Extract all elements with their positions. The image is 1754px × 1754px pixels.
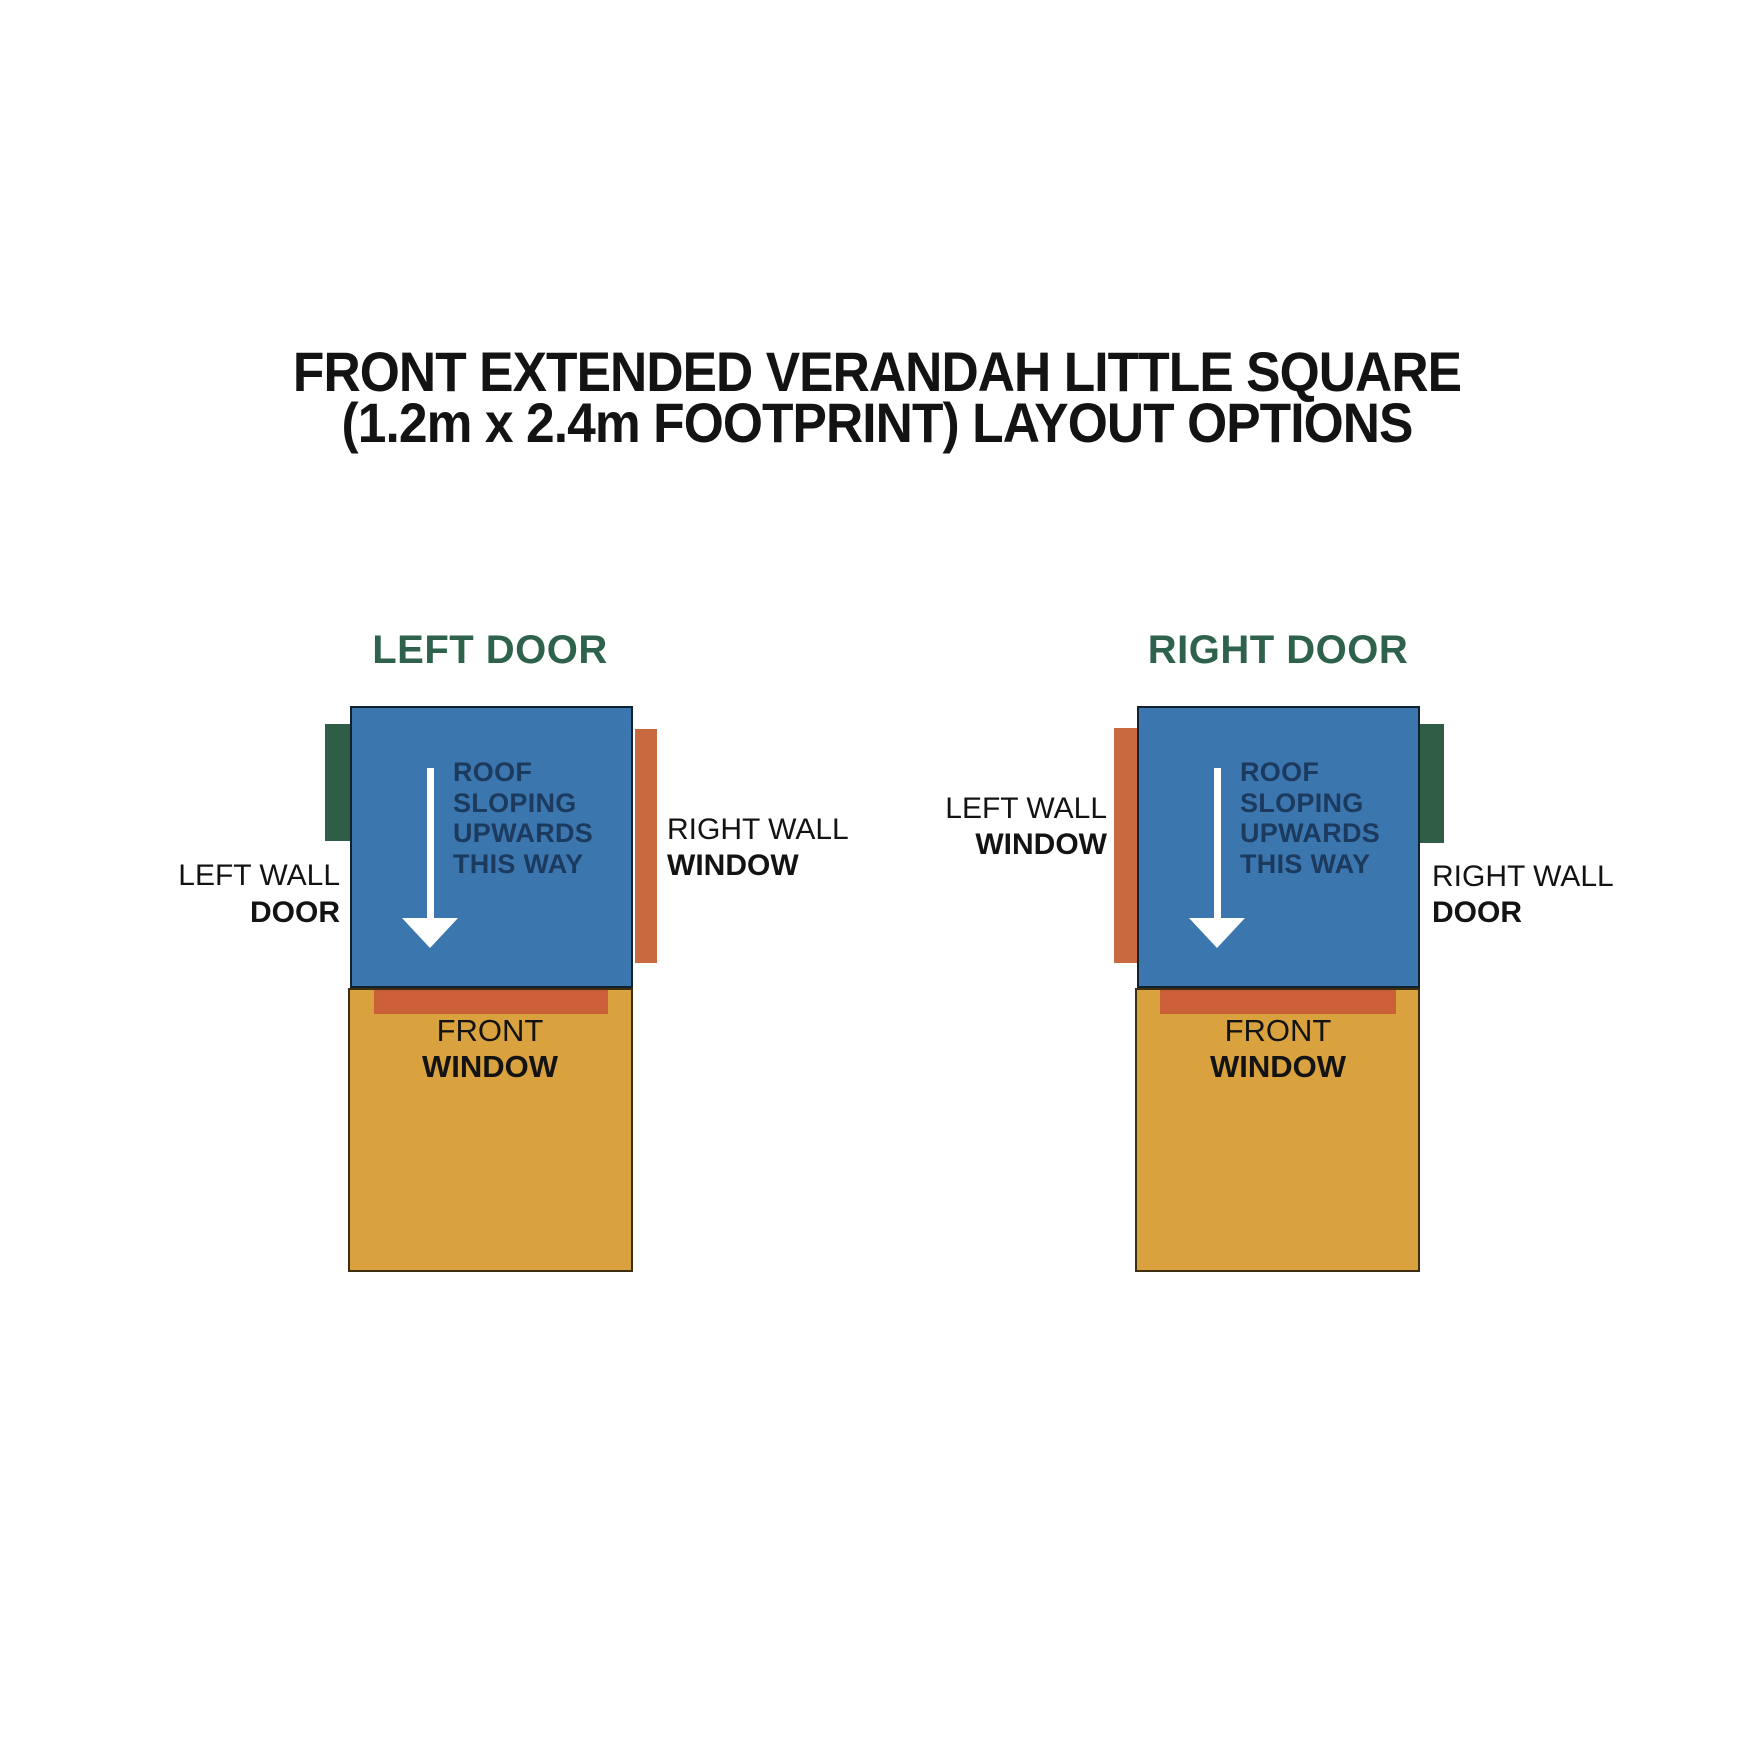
right-option-left-wall-window-rect	[1114, 728, 1137, 963]
left-option-left-wall-door-rect	[325, 724, 350, 841]
right-option-roof-note: ROOF SLOPING UPWARDS THIS WAY	[1240, 757, 1410, 879]
front-feature-label: WINDOW	[340, 1049, 640, 1085]
left-option-roof-note: ROOF SLOPING UPWARDS THIS WAY	[453, 757, 623, 879]
left-option-front-window-bar	[374, 990, 608, 1014]
left-option-slope-arrow-head	[402, 918, 458, 948]
roof-note-line: UPWARDS	[1240, 818, 1410, 849]
left-option-right-wall-label: RIGHT WALL WINDOW	[667, 812, 849, 884]
front-label-line: FRONT	[340, 1013, 640, 1049]
right-option-right-wall-label: RIGHT WALL DOOR	[1432, 859, 1614, 931]
wall-feature-label: WINDOW	[667, 848, 849, 884]
left-option-slope-arrow-shaft	[427, 768, 434, 920]
right-option-left-wall-label: LEFT WALL WINDOW	[907, 791, 1107, 863]
roof-note-line: UPWARDS	[453, 818, 623, 849]
heading-right-door: RIGHT DOOR	[1078, 628, 1478, 673]
wall-label-line: RIGHT WALL	[1432, 859, 1614, 895]
roof-note-line: ROOF	[453, 757, 623, 788]
page-title-line1: FRONT EXTENDED VERANDAH LITTLE SQUARE	[70, 346, 1684, 397]
page-title-line2: (1.2m x 2.4m FOOTPRINT) LAYOUT OPTIONS	[70, 397, 1684, 448]
wall-feature-label: DOOR	[1432, 895, 1614, 931]
wall-label-line: RIGHT WALL	[667, 812, 849, 848]
page-title: FRONT EXTENDED VERANDAH LITTLE SQUARE (1…	[0, 346, 1754, 448]
roof-note-line: THIS WAY	[453, 849, 623, 880]
right-option-slope-arrow-shaft	[1214, 768, 1221, 920]
front-label-line: FRONT	[1128, 1013, 1428, 1049]
left-option-left-wall-label: LEFT WALL DOOR	[140, 857, 340, 931]
roof-note-line: SLOPING	[453, 788, 623, 819]
wall-label-line: LEFT WALL	[907, 791, 1107, 827]
left-option-front-window-label: FRONT WINDOW	[340, 1013, 640, 1085]
diagram-canvas: FRONT EXTENDED VERANDAH LITTLE SQUARE (1…	[0, 0, 1754, 1754]
front-feature-label: WINDOW	[1128, 1049, 1428, 1085]
roof-note-line: ROOF	[1240, 757, 1410, 788]
right-option-front-window-label: FRONT WINDOW	[1128, 1013, 1428, 1085]
right-option-right-wall-door-rect	[1420, 724, 1444, 843]
roof-note-line: SLOPING	[1240, 788, 1410, 819]
right-option-front-window-bar	[1160, 990, 1396, 1014]
wall-feature-label: DOOR	[140, 894, 340, 931]
heading-left-door: LEFT DOOR	[290, 628, 690, 673]
left-option-right-wall-window-rect	[635, 729, 657, 963]
roof-note-line: THIS WAY	[1240, 849, 1410, 880]
wall-label-line: LEFT WALL	[140, 857, 340, 894]
wall-feature-label: WINDOW	[907, 827, 1107, 863]
right-option-slope-arrow-head	[1189, 918, 1245, 948]
